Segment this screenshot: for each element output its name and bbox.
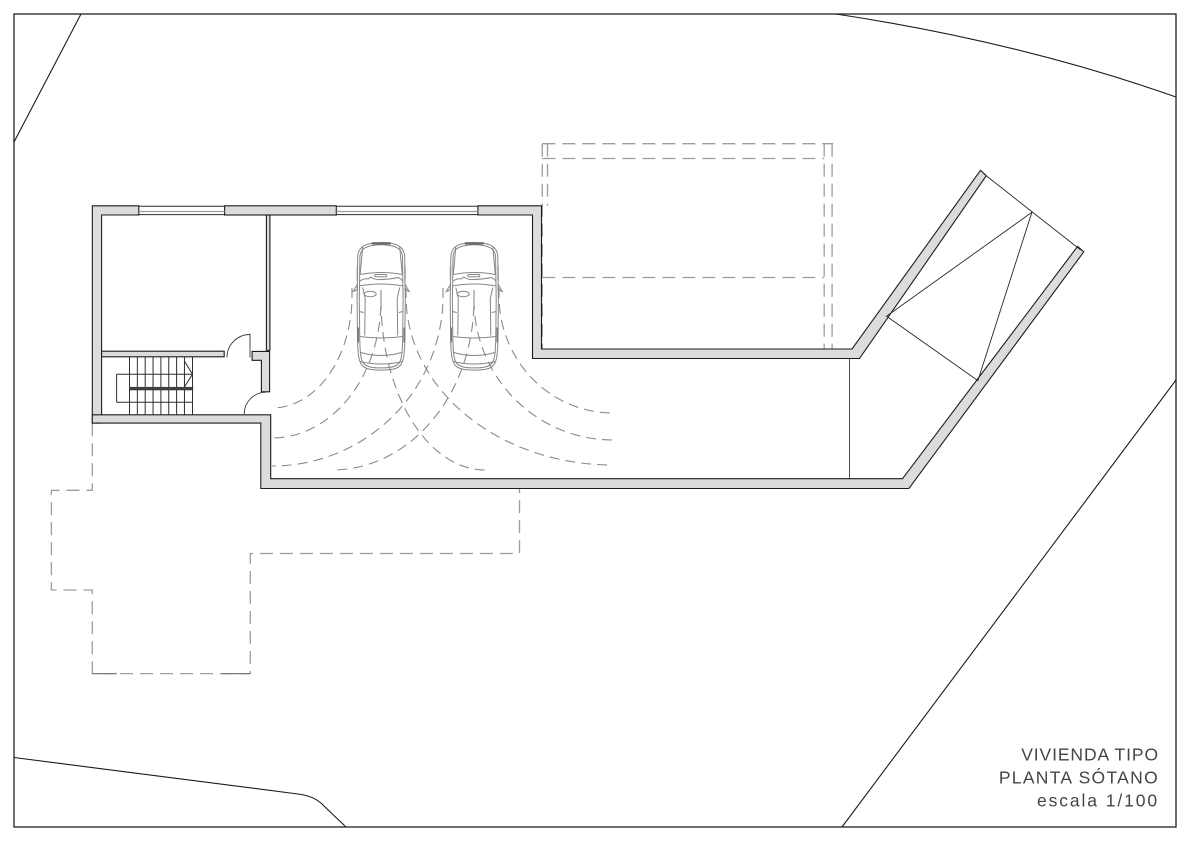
svg-text:escala 1/100: escala 1/100: [1037, 791, 1159, 811]
svg-text:VIVIENDA TIPO: VIVIENDA TIPO: [1021, 745, 1159, 765]
svg-text:PLANTA SÓTANO: PLANTA SÓTANO: [999, 767, 1159, 788]
